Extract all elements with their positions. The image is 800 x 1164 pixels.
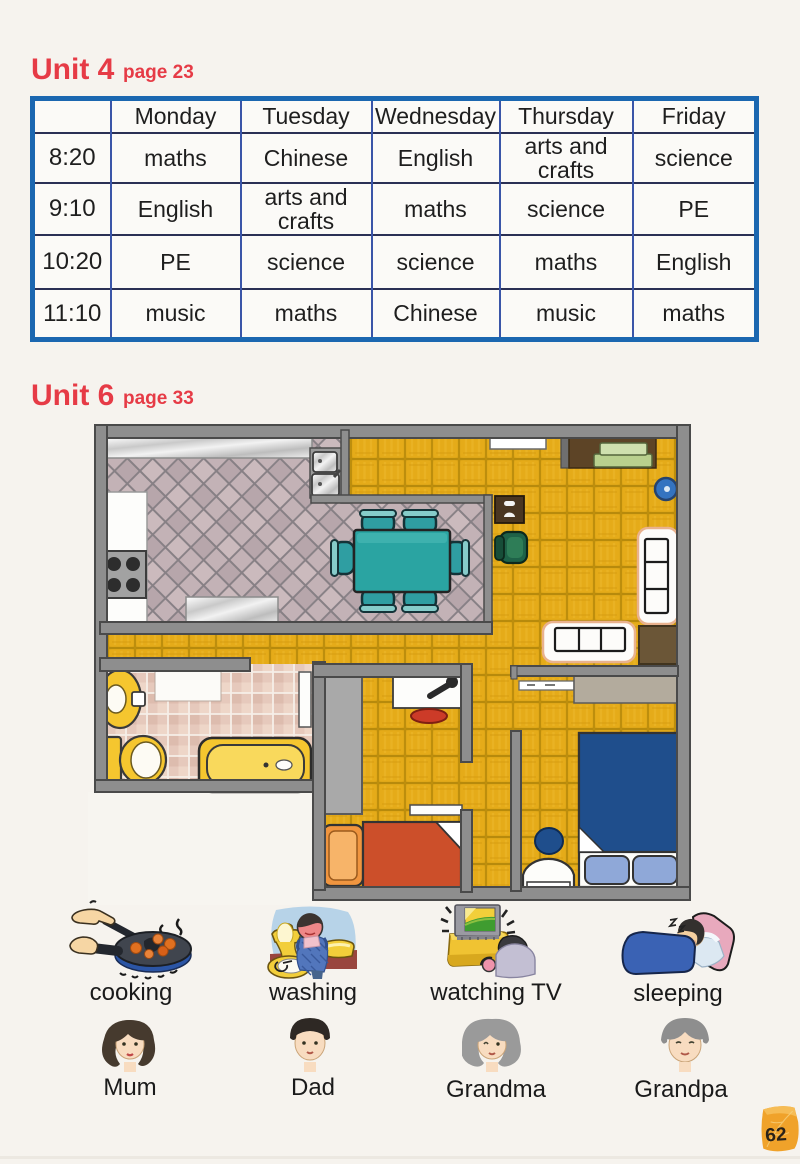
svg-text:62: 62 [765, 1124, 788, 1146]
